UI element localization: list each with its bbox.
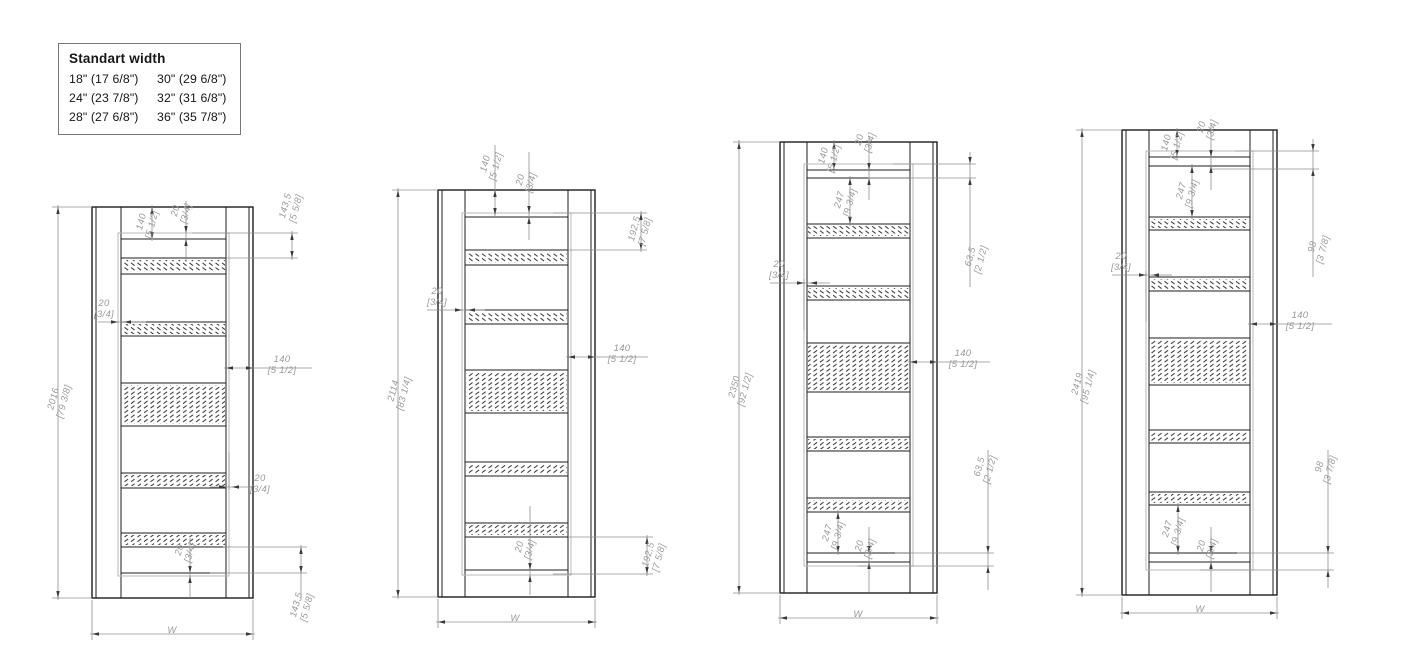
dim-arrow	[527, 206, 530, 213]
dim-arrow	[968, 178, 971, 185]
dim-label-text: 20	[430, 286, 443, 297]
dim-label: W	[510, 613, 520, 624]
dim-arrow	[836, 512, 839, 519]
dim-label: 20[3/4]	[768, 259, 789, 281]
dim-label-text: [5 1/2]	[948, 359, 978, 370]
dim-arrow	[396, 590, 399, 597]
dim-arrow	[1080, 588, 1083, 595]
dim-label-text: [5 1/2]	[607, 354, 637, 365]
hatch-strip	[1150, 279, 1249, 289]
dim-label: 140[5 1/2]	[476, 149, 505, 183]
dim-arrow	[588, 620, 595, 623]
dim-arrow	[986, 566, 989, 573]
dim-label-text: [3/4]	[182, 542, 198, 565]
dim-label: 20[3/4]	[1110, 251, 1131, 273]
dim-label: 20[3/4]	[851, 129, 878, 155]
hatch-strip	[808, 439, 909, 449]
dim-arrow	[111, 320, 118, 323]
dim-label-text: W	[167, 625, 177, 636]
dim-label: 247[9 3/4]	[818, 518, 847, 552]
dim-label-text: [5 1/2]	[267, 365, 297, 376]
dim-arrow	[493, 190, 496, 197]
dim-arrow	[1122, 611, 1129, 614]
dim-arrow	[299, 547, 302, 554]
dim-label-text: 20	[772, 259, 785, 270]
dim-label: 2419[95 1/4]	[1068, 366, 1098, 406]
dim-arrow	[290, 233, 293, 240]
dim-arrow	[780, 616, 787, 619]
dim-label: 143,5[5 5/8]	[287, 590, 316, 624]
dim-label: 20[3/4]	[1193, 535, 1220, 561]
dim-arrow	[246, 632, 253, 635]
dim-label-text: 20	[1114, 251, 1127, 262]
dim-arrow	[1326, 570, 1329, 577]
dim-arrow	[1190, 210, 1193, 217]
dim-arrow	[528, 563, 531, 570]
dim-label: 2114[83 1/4]	[384, 373, 414, 413]
dim-arrow	[1152, 273, 1159, 276]
hatch-strip	[808, 226, 909, 236]
dim-arrow	[455, 308, 462, 311]
dim-label: 20[3/4]	[1193, 116, 1220, 142]
dim-label: 20[3/4]	[512, 169, 539, 195]
dim-label: 140[5 1/2]	[607, 343, 637, 365]
dim-label: 63,5[2 1/2]	[961, 242, 990, 276]
hatch-strip	[122, 475, 225, 486]
dim-label-text: [3 7/8]	[1314, 234, 1332, 265]
dim-label: 140[5 1/2]	[948, 348, 978, 370]
dim-label-text: 20	[97, 298, 110, 309]
dim-label-text: [3/4]	[862, 538, 878, 561]
dim-label-text: [3/4]	[93, 309, 114, 320]
dim-label: 20[3/4]	[426, 286, 447, 308]
dim-label: 20[3/4]	[249, 473, 270, 495]
door-height-2016: 2016[79 3/8]W140[5 1/2]20[3/4]143,5[5 5/…	[44, 191, 317, 640]
dim-label: W	[1195, 604, 1205, 615]
door-height-2114: 2114[83 1/4]W140[5 1/2]20[3/4]192,5[7 5/…	[384, 145, 669, 628]
dim-arrow	[1139, 273, 1146, 276]
technical-drawing: 2016[79 3/8]W140[5 1/2]20[3/4]143,5[5 5/…	[0, 0, 1401, 670]
dim-label-text: [3 7/8]	[1321, 454, 1339, 485]
dim-label-text: [9 3/4]	[829, 520, 847, 551]
hatch-strip	[122, 324, 225, 334]
dim-label: 20[3/4]	[511, 536, 538, 562]
dim-arrow	[493, 208, 496, 215]
dim-label: 2016[79 3/8]	[44, 381, 74, 421]
dim-label: 98[3 7/8]	[1303, 232, 1332, 266]
dim-label: 192,5[7 5/8]	[625, 214, 654, 248]
dim-label-text: 140	[614, 343, 631, 354]
dim-arrow	[737, 142, 740, 149]
hatch-strip	[466, 525, 567, 535]
dim-arrow	[184, 226, 187, 233]
dim-label-text: W	[1195, 604, 1205, 615]
dim-label: W	[853, 609, 863, 620]
dim-label: 247[9 3/4]	[1172, 176, 1201, 210]
dim-label-text: 140	[1292, 310, 1309, 321]
dim-arrow	[299, 566, 302, 573]
dim-arrow	[290, 251, 293, 258]
dim-label-text: [3/4]	[523, 172, 539, 195]
hatch-strip	[122, 535, 225, 545]
hatch-strip	[1150, 432, 1249, 441]
dim-arrow	[468, 308, 475, 311]
dim-arrow	[867, 163, 870, 170]
dim-arrow	[1080, 130, 1083, 137]
dim-label-text: [3/4]	[178, 203, 194, 226]
dim-arrow	[986, 546, 989, 553]
dim-label-text: [5 1/2]	[487, 151, 505, 182]
dim-arrow	[1209, 150, 1212, 157]
dim-label: 98[3 7/8]	[1310, 452, 1339, 486]
dim-arrow	[810, 281, 817, 284]
dim-arrow	[56, 207, 59, 214]
dim-label-text: 20	[253, 473, 266, 484]
dim-label-text: [5 1/2]	[143, 209, 161, 240]
dim-arrow	[848, 178, 851, 185]
hatch-strip	[1150, 340, 1249, 383]
dim-arrow	[527, 217, 530, 224]
dim-label-text: W	[510, 613, 520, 624]
hatch-strip	[466, 464, 567, 474]
dim-label-text: [3/4]	[249, 484, 270, 495]
dim-label-text: [3/4]	[1204, 119, 1220, 142]
hatch-strip	[466, 372, 567, 411]
dim-arrow	[867, 178, 870, 185]
dim-label: 140[5 1/2]	[267, 354, 297, 376]
dim-arrow	[930, 616, 937, 619]
dim-arrow	[92, 632, 99, 635]
dim-arrow	[1270, 611, 1277, 614]
dim-label-text: [3/4]	[862, 132, 878, 155]
dim-arrow	[528, 575, 531, 582]
hatch-strip	[808, 500, 909, 510]
dim-label-text: [5 1/2]	[1285, 321, 1315, 332]
dim-label: 20[3/4]	[851, 535, 878, 561]
dim-label: 247[9 3/4]	[830, 185, 859, 219]
dim-label-text: [3/4]	[768, 270, 789, 281]
dim-label: 140[5 1/2]	[132, 207, 161, 241]
dim-arrow	[1190, 166, 1193, 173]
dim-label-text: [3/4]	[426, 297, 447, 308]
dim-arrow	[1311, 144, 1314, 151]
dim-label-text: [9 3/4]	[1183, 178, 1201, 209]
dim-arrow	[56, 591, 59, 598]
dim-label: 140[5 1/2]	[1285, 310, 1315, 332]
dim-arrow	[184, 239, 187, 246]
hatch-strip	[1150, 494, 1249, 503]
hatch-strip	[122, 260, 225, 272]
dim-arrow	[1209, 166, 1212, 173]
door-height-2350: 2350[92 1/2]W140[5 1/2]20[3/4]247[9 3/4]…	[725, 129, 1000, 624]
dim-arrow	[1176, 505, 1179, 512]
dim-arrow	[232, 485, 239, 488]
dim-label-text: 140	[955, 348, 972, 359]
dim-arrow	[124, 320, 131, 323]
dim-arrow	[188, 566, 191, 573]
dim-label: 247[9 3/4]	[1158, 514, 1187, 548]
dim-label: 192,5[7 5/8]	[639, 540, 668, 574]
dim-label: 20[3/4]	[167, 200, 194, 226]
dim-arrow	[438, 620, 445, 623]
dim-label-text: [3/4]	[1110, 262, 1131, 273]
hatch-strip	[122, 385, 225, 424]
dim-label-text: 140	[274, 354, 291, 365]
dim-arrow	[797, 281, 804, 284]
dim-arrow	[188, 576, 191, 583]
hatch-strip	[466, 252, 567, 263]
dim-label-text: [9 3/4]	[841, 187, 859, 218]
dim-label: 2350[92 1/2]	[725, 369, 755, 409]
dim-label: W	[167, 625, 177, 636]
hatch-strip	[808, 345, 909, 390]
dim-label-text: W	[853, 609, 863, 620]
hatch-strip	[466, 312, 567, 322]
dim-label-text: [3/4]	[522, 539, 538, 562]
dim-arrow	[968, 157, 971, 164]
hatch-strip	[808, 288, 909, 298]
dim-arrow	[1209, 562, 1212, 569]
dim-label: 143,5[5 5/8]	[276, 191, 305, 225]
dim-label: 63,5[2 1/2]	[970, 452, 999, 486]
dim-label-text: [3/4]	[1204, 538, 1220, 561]
dim-arrow	[396, 190, 399, 197]
hatch-strip	[1150, 219, 1249, 228]
dim-arrow	[1311, 169, 1314, 176]
door-height-2419: 2419[95 1/4]W140[5 1/2]20[3/4]247[9 3/4]…	[1068, 116, 1340, 619]
dim-label-text: [9 3/4]	[1169, 516, 1187, 547]
dim-arrow	[737, 586, 740, 593]
dim-arrow	[1326, 546, 1329, 553]
